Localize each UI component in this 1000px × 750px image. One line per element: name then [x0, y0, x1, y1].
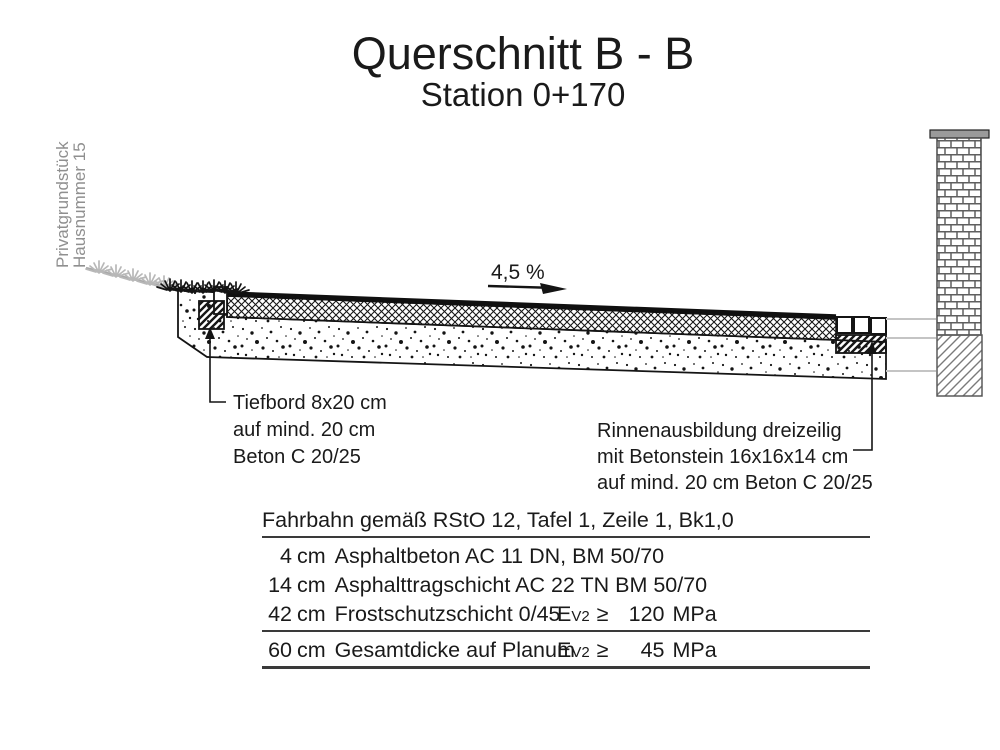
slope-label: 4,5 %: [491, 261, 545, 284]
table-row: 42 cm Frostschutzschicht 0/45 EV2≥120MPa: [262, 596, 870, 632]
wall-cap: [930, 130, 989, 138]
gutter-annotation-line2: mit Betonstein 16x16x14 cm: [597, 446, 848, 468]
gutter-annotation-line1: Rinnenausbildung dreizeilig: [597, 420, 842, 442]
layer-unit: cm: [297, 545, 326, 567]
table-row: 60 cm Gesamtdicke auf Planum EV2≥45MPa: [262, 632, 870, 661]
kerb-concrete-bed: [199, 301, 224, 329]
layer-description: Asphaltbeton AC 11 DN, BM 50/70: [335, 545, 664, 567]
gutter-annotation: Rinnenausbildung dreizeilig mit Betonste…: [597, 420, 873, 494]
grass-private-property: [86, 261, 177, 288]
wall-foundation: [937, 335, 982, 396]
kerb-annotation-line2: auf mind. 20 cm: [233, 419, 375, 441]
layer-depth: 14: [262, 574, 292, 596]
layer-description: Frostschutzschicht 0/45: [335, 603, 561, 625]
gutter-stones: [837, 317, 886, 334]
garden-wall: [937, 138, 981, 335]
table-row: 14 cm Asphalttragschicht AC 22 TN BM 50/…: [262, 567, 870, 596]
layer-spec: EV2≥120MPa: [557, 603, 717, 628]
grass-verge: [157, 279, 249, 294]
layer-spec: EV2≥45MPa: [557, 639, 717, 664]
table-title: Fahrbahn gemäß RStO 12, Tafel 1, Zeile 1…: [262, 508, 870, 538]
layer-depth: 42: [262, 603, 292, 625]
layer-unit: cm: [297, 603, 326, 625]
table-row: 4 cm Asphaltbeton AC 11 DN, BM 50/70: [262, 538, 870, 567]
pavement-spec-table: Fahrbahn gemäß RStO 12, Tafel 1, Zeile 1…: [262, 508, 870, 669]
kerb-annotation-line1: Tiefbord 8x20 cm: [233, 392, 387, 414]
kerb-annotation: Tiefbord 8x20 cm auf mind. 20 cm Beton C…: [233, 392, 387, 468]
drawing-sheet: Querschnitt B - B Station 0+170: [0, 0, 1000, 750]
slope-arrowhead: [540, 283, 567, 294]
gutter-annotation-line3: auf mind. 20 cm Beton C 20/25: [597, 472, 873, 494]
kerb-annotation-line3: Beton C 20/25: [233, 446, 361, 468]
layer-unit: cm: [297, 574, 326, 596]
layer-depth: 60: [262, 639, 292, 661]
gutter-concrete-bed: [836, 335, 886, 353]
private-property-label: Privatgrundstück Hausnummer 15: [53, 141, 89, 268]
layer-description: Asphalttragschicht AC 22 TN BM 50/70: [335, 574, 707, 596]
layer-depth: 4: [262, 545, 292, 567]
private-property-line2: Hausnummer 15: [70, 142, 89, 268]
connector-lines: [886, 319, 936, 371]
layer-unit: cm: [297, 639, 326, 661]
layer-description: Gesamtdicke auf Planum: [335, 639, 575, 661]
